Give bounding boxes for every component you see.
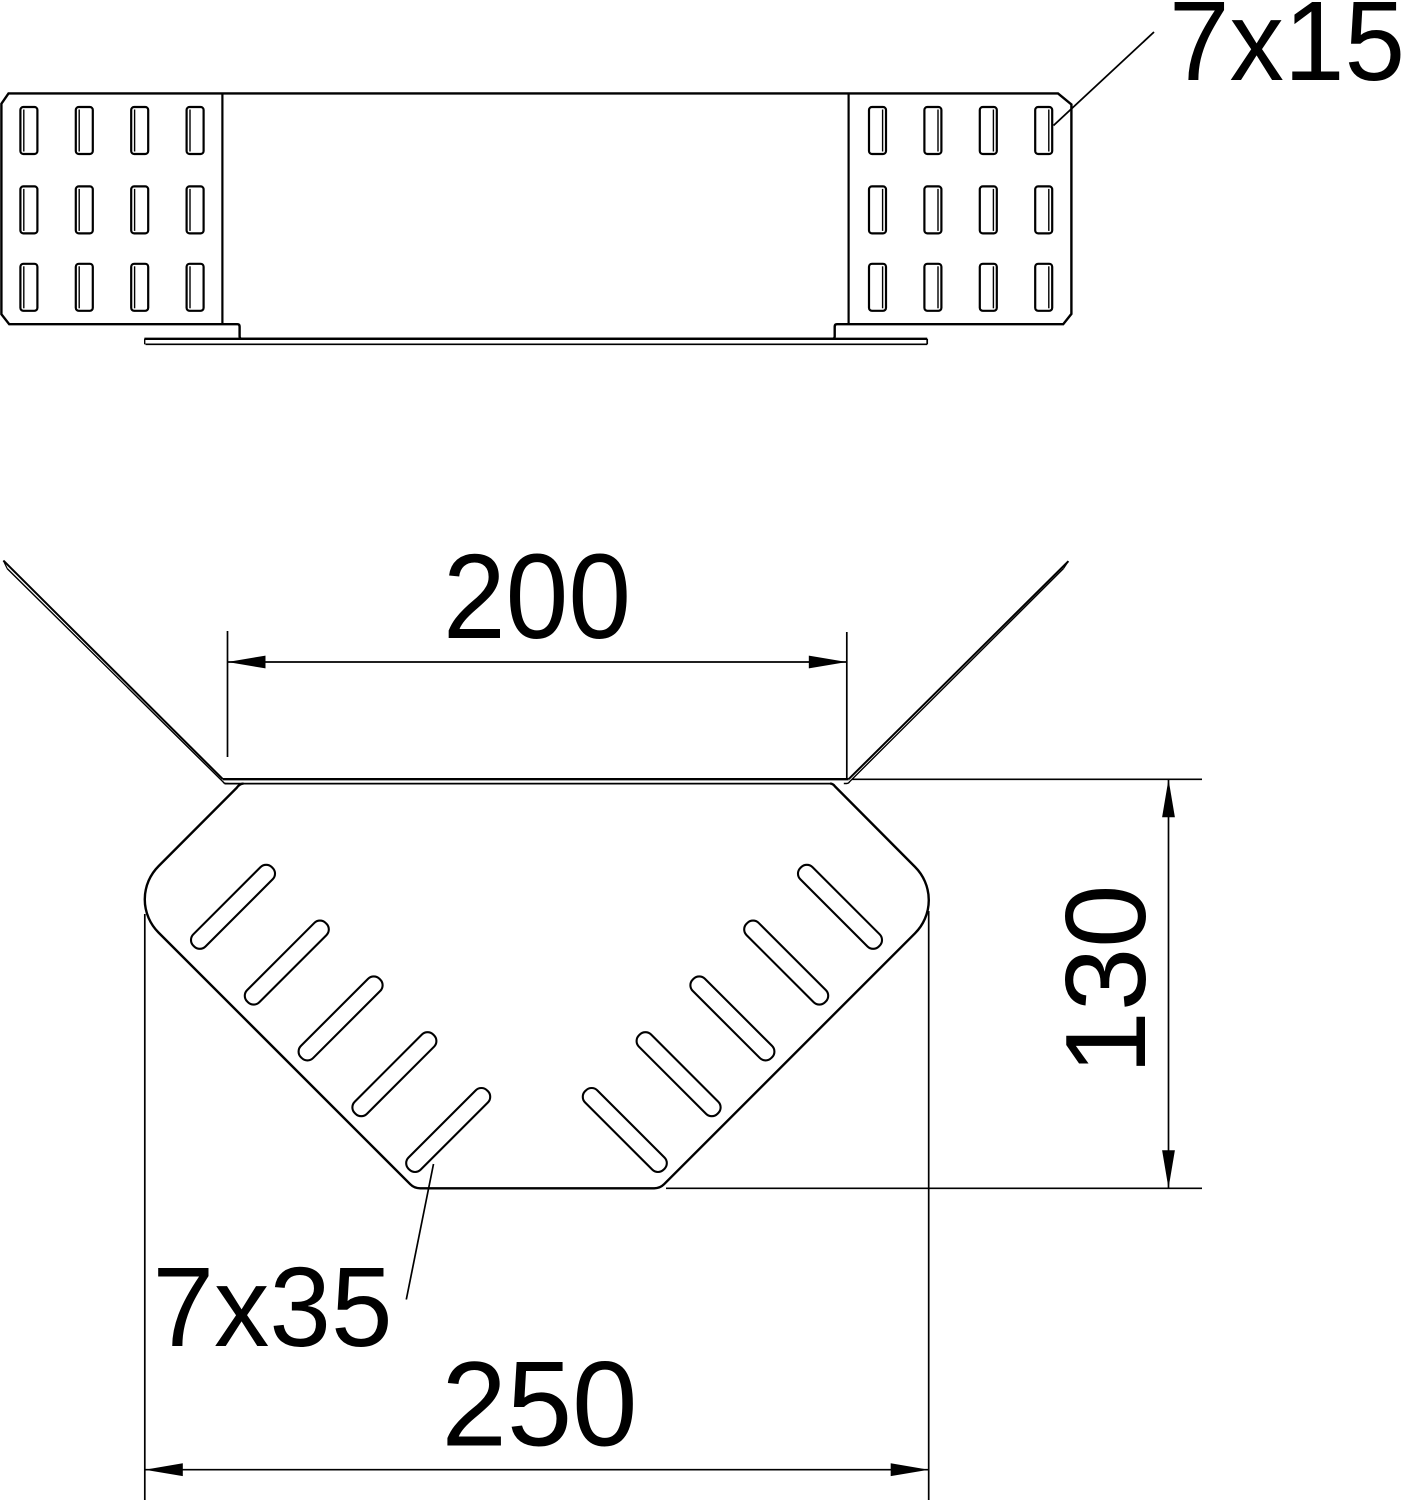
svg-text:7x35: 7x35 bbox=[153, 1244, 393, 1370]
svg-text:250: 250 bbox=[442, 1336, 638, 1472]
svg-text:7x15: 7x15 bbox=[1169, 0, 1404, 104]
svg-text:130: 130 bbox=[1043, 885, 1170, 1075]
svg-text:200: 200 bbox=[443, 528, 631, 664]
